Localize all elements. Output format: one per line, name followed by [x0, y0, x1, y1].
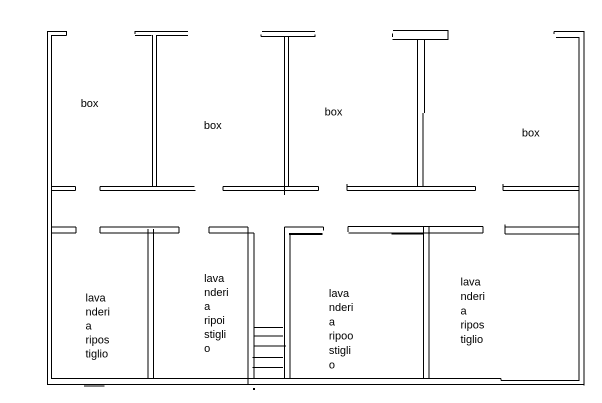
svg-text:box: box: [522, 128, 540, 140]
svg-text:lava: lava: [329, 288, 350, 300]
svg-text:a: a: [86, 321, 93, 333]
svg-text:ripos: ripos: [86, 335, 110, 347]
svg-text:box: box: [204, 120, 222, 132]
svg-text:nderi: nderi: [461, 291, 485, 303]
svg-text:tiglio: tiglio: [86, 349, 109, 361]
svg-text:o: o: [204, 343, 210, 355]
svg-text:lava: lava: [461, 277, 482, 289]
svg-text:o: o: [329, 359, 335, 371]
svg-text:a: a: [329, 316, 336, 328]
svg-text:ripos: ripos: [461, 320, 485, 332]
svg-text:a: a: [204, 301, 211, 313]
svg-text:box: box: [325, 106, 343, 118]
svg-text:tiglio: tiglio: [461, 334, 484, 346]
svg-text:nderi: nderi: [86, 307, 110, 319]
svg-text:stigli: stigli: [329, 345, 351, 357]
svg-text:lava: lava: [204, 273, 225, 285]
svg-text:a: a: [461, 305, 468, 317]
svg-text:nderi: nderi: [204, 287, 228, 299]
svg-text:ripoo: ripoo: [329, 331, 353, 343]
svg-text:box: box: [81, 98, 99, 110]
svg-text:lava: lava: [86, 293, 107, 305]
svg-text:stigli: stigli: [204, 329, 226, 341]
svg-text:ripoi: ripoi: [204, 315, 225, 327]
svg-text:nderi: nderi: [329, 302, 353, 314]
